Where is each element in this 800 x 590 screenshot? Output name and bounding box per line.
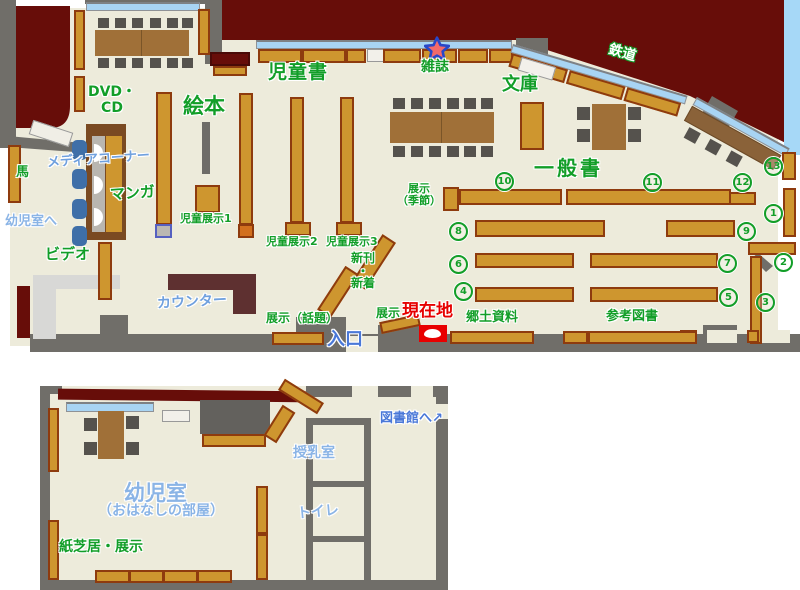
chair [447,146,459,157]
chair [447,98,459,109]
bookshelf [213,66,247,76]
shelf-number-10: 10 [495,172,514,191]
chair [429,98,441,109]
current-location-marker [419,325,447,342]
current-location-icon [424,329,441,338]
bookshelf [346,49,366,63]
chair [126,416,139,429]
bookshelf [747,330,759,343]
shelf-number-1: 1 [764,204,783,223]
bookshelf [256,534,268,580]
bookshelf [450,331,534,344]
wall-room-v1 [306,418,313,580]
seasonal-display-shelf [443,187,459,211]
chair [98,18,109,28]
label-tenji-wadai: 展示（話題） [266,312,338,325]
chair [464,146,476,157]
chair [429,146,441,157]
topic-display-shelf [272,332,324,345]
chair [628,129,641,142]
gap-a [707,330,737,343]
label-jidosho: 児童書 [268,62,328,83]
label-tenji2: 児童展示2 [266,236,318,248]
wall-block-a [100,315,128,335]
label-to-library: 図書館へ↗ [380,397,443,426]
chair [115,18,126,28]
media-corner-screens [92,136,105,232]
label-to-infant-room: 幼児室へ [5,215,57,230]
shelf-number-13: 13 [764,157,783,176]
chair [393,146,405,157]
label-kamishibai: 紙芝居・展示 [59,540,143,556]
bookshelf [588,331,697,344]
shelf-number-3: 3 [756,293,775,312]
chair [84,418,97,431]
kiosk [210,52,250,66]
label-kyodo: 郷土資料 [466,311,518,326]
chair [167,58,178,68]
chair [167,18,178,28]
bookshelf [475,287,574,302]
label-infant-room-sub: （おはなしの部屋） [98,504,224,520]
bookshelf [163,570,198,583]
chair [393,98,405,109]
media-chair [72,169,87,189]
bookshelf [459,189,562,205]
chair [84,442,97,455]
label-zasshi: 雑誌 [421,60,449,76]
shelf-number-8: 8 [449,222,468,241]
media-chair [72,199,87,219]
label-genzaichi: 現在地 [402,302,453,321]
reading-table [592,104,626,150]
window-top-center [256,40,512,49]
bookshelf [383,49,421,63]
exterior-bottom-left [17,286,30,338]
display-case [162,410,190,422]
bookshelf [340,97,354,223]
return-box [367,49,384,62]
bookshelf [782,152,796,180]
chair [684,127,701,144]
shelf-number-2: 2 [774,253,793,272]
reading-table [442,112,494,143]
bookshelf [98,242,112,300]
shelf-number-12: 12 [733,173,752,192]
door-gap [352,386,378,397]
counter-floor-b [33,289,56,339]
bookshelf [198,9,210,55]
label-iriguchi: 入口 [327,330,363,350]
gap-b [762,330,790,343]
chair [577,107,590,120]
wall-room-h2 [306,536,371,542]
bookshelf-base [285,222,311,236]
wall-room-top [306,418,371,425]
bookshelf [256,486,268,534]
bookshelf [290,97,304,223]
bookshelf [590,287,718,302]
bookshelf [590,253,718,268]
shelf-number-11: 11 [643,173,662,192]
shelf-number-6: 6 [449,255,468,274]
bookshelf [48,408,59,472]
bookshelf [475,220,605,237]
wall-room-v2 [364,418,371,580]
chair [481,98,493,109]
bookshelf [129,570,164,583]
chair [115,58,126,68]
ehon-pole [202,122,210,174]
structure-block [200,400,270,434]
chair [411,98,423,109]
chair [628,107,641,120]
chair [182,58,193,68]
label-ippansho: 一般書 [534,157,603,179]
bookshelf [95,570,130,583]
bookshelf [729,192,756,205]
bookshelf [74,10,85,70]
door-gap [411,386,433,397]
shelf-number-7: 7 [718,254,737,273]
reading-table [95,30,142,56]
wall-room-h1 [306,481,371,487]
chair [126,442,139,455]
sky-right [784,0,800,155]
bookshelf [666,220,735,237]
bookshelf [475,253,574,268]
service-counter [168,274,256,290]
label-uma: 馬 [16,166,29,181]
reading-table [390,112,442,143]
bookshelf [520,102,544,150]
label-sanko: 参考図書 [606,310,658,325]
chair [150,18,161,28]
shelf-number-5: 5 [719,288,738,307]
bookshelf [239,93,253,225]
reading-table [142,30,189,56]
chair [132,18,143,28]
bookshelf [458,49,488,63]
chair [464,98,476,109]
label-dvd-cd: DVD・ CD [84,85,140,116]
label-ehon: 絵本 [183,95,225,119]
bookshelf [156,92,172,225]
chair [726,150,743,167]
service-counter [233,290,256,314]
display-box-orange [238,224,254,238]
bookshelf [202,434,266,447]
shelf-number-4: 4 [454,282,473,301]
bookshelf [197,570,232,583]
bookshelf [48,520,59,580]
label-tenji3: 児童展示3 [326,236,378,248]
label-manga: マンガ [109,183,155,203]
chair [98,58,109,68]
chair [132,58,143,68]
wall-left [0,0,16,148]
exterior-left-block [16,6,70,128]
to-library-text: 図書館へ [380,411,432,426]
chair [182,18,193,28]
label-infant-room: 幼児室 [124,482,187,506]
chair [705,139,722,156]
chair [577,129,590,142]
exit-arrow-icon: ↗ [432,411,443,426]
label-tenji-kisetsu: 展示 （季節） [396,183,442,208]
label-junyu: 授乳室 [293,446,335,462]
chair [150,58,161,68]
label-bunko: 文庫 [502,75,538,95]
media-chair [72,226,87,246]
bookshelf [563,331,588,344]
label-video: ビデオ [45,246,90,263]
chair [411,146,423,157]
window-topleft [86,2,200,11]
display-box-blue [155,224,172,238]
label-tenji: 展示 [376,307,400,320]
shelf-number-9: 9 [737,222,756,241]
library-floor-map: 10 11 12 13 1 8 9 2 6 7 4 5 3 DVD・ CD 絵本… [0,0,800,590]
display-table-tenji1 [195,185,220,213]
bookshelf [783,188,796,237]
bookshelf-base [336,222,362,236]
chair [481,146,493,157]
label-shinkan: 新刊 ・ 新着 [336,252,390,290]
label-tenji1: 児童展示1 [180,213,232,225]
story-table [98,411,124,459]
bookshelf [748,242,796,255]
